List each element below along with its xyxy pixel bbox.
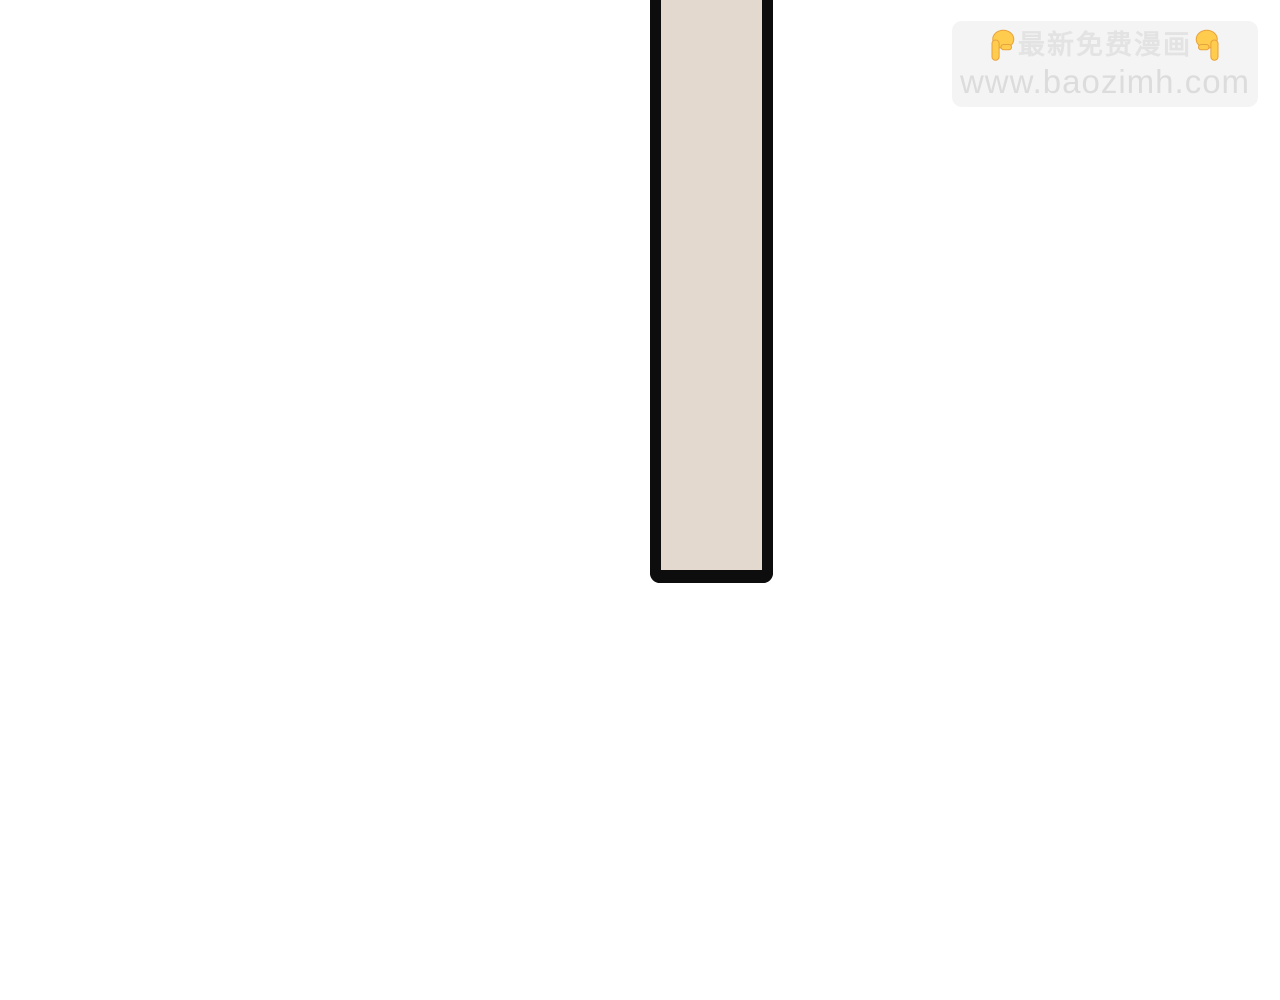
watermark-line1-text: 最新免费漫画 <box>1018 31 1192 61</box>
point-down-emoji-icon <box>986 28 1016 64</box>
comic-panel <box>650 0 773 583</box>
point-down-emoji-icon <box>1194 28 1224 64</box>
watermark-line1: 最新免费漫画 <box>986 28 1224 64</box>
watermark-badge: 最新免费漫画 www.baozimh.com <box>952 21 1258 107</box>
watermark-site-url: www.baozimh.com <box>960 65 1250 100</box>
